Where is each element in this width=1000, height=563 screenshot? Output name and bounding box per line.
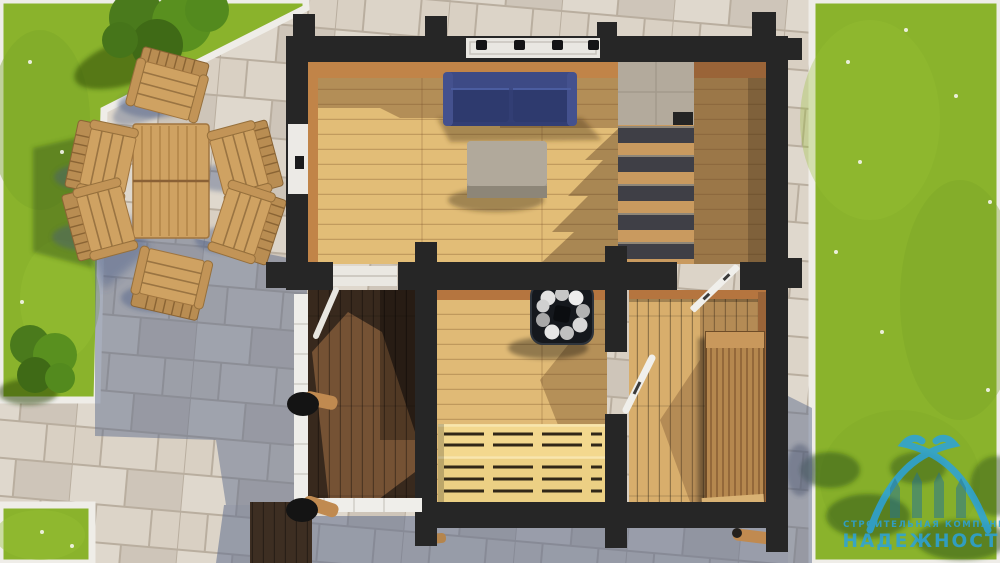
sofa-seat-cushion (451, 88, 509, 122)
sofa-seat-cushion (513, 88, 571, 122)
watermark-brand: НАДЕЖНОСТЬ (842, 531, 1000, 552)
sofa-armrest (443, 72, 453, 126)
window-handle (552, 40, 563, 50)
log-end (766, 528, 788, 552)
log-end (605, 528, 627, 548)
wall-bottom (415, 502, 788, 528)
window-handle (295, 156, 304, 169)
log-end (788, 38, 802, 60)
wall-divider-sauna (605, 246, 627, 352)
log-end (425, 16, 447, 38)
log-end (597, 22, 617, 38)
house (250, 12, 802, 563)
sofa-armrest (567, 72, 577, 126)
window-handle (514, 40, 525, 50)
wall-divider-terrace (415, 242, 437, 518)
lounger-headrest (706, 332, 764, 348)
top-window (466, 38, 600, 58)
stair-step (618, 185, 694, 201)
sofa-back-cushion (443, 72, 577, 90)
aerial-house-render: СТРОИТЕЛЬНАЯ КОМПАНИЯ НАДЕЖНОСТЬ (0, 0, 1000, 563)
sauna-bench-upper (438, 424, 605, 456)
window-handle (588, 40, 599, 50)
wall-right (766, 36, 788, 528)
left-window (288, 124, 308, 194)
stair-step (618, 127, 694, 143)
log-end (752, 12, 776, 60)
wooden-lounger (698, 332, 764, 512)
garden-table (133, 124, 209, 238)
log-end (415, 528, 437, 546)
watermark-tagline: СТРОИТЕЛЬНАЯ КОМПАНИЯ (843, 520, 1000, 530)
stair-step (618, 214, 694, 230)
log-end (266, 262, 288, 288)
log-end (788, 258, 802, 288)
stair-step (618, 156, 694, 172)
wall-middle (398, 262, 677, 290)
wall-middle (286, 262, 333, 290)
wall-middle (740, 262, 766, 290)
stair-step (618, 243, 694, 259)
log-end (293, 14, 315, 40)
window-handle (476, 40, 487, 50)
